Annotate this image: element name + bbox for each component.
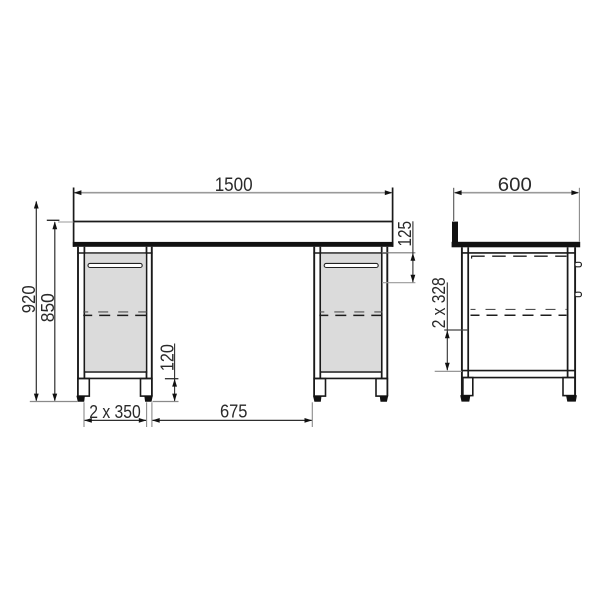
svg-text:125: 125: [395, 221, 415, 247]
svg-text:675: 675: [220, 401, 248, 422]
svg-text:120: 120: [157, 344, 177, 371]
svg-text:920: 920: [19, 285, 39, 313]
svg-text:1500: 1500: [215, 175, 253, 196]
svg-text:600: 600: [498, 175, 532, 196]
svg-text:2 x 350: 2 x 350: [89, 402, 141, 422]
svg-text:850: 850: [38, 293, 58, 322]
svg-text:2 x 328: 2 x 328: [428, 277, 449, 328]
